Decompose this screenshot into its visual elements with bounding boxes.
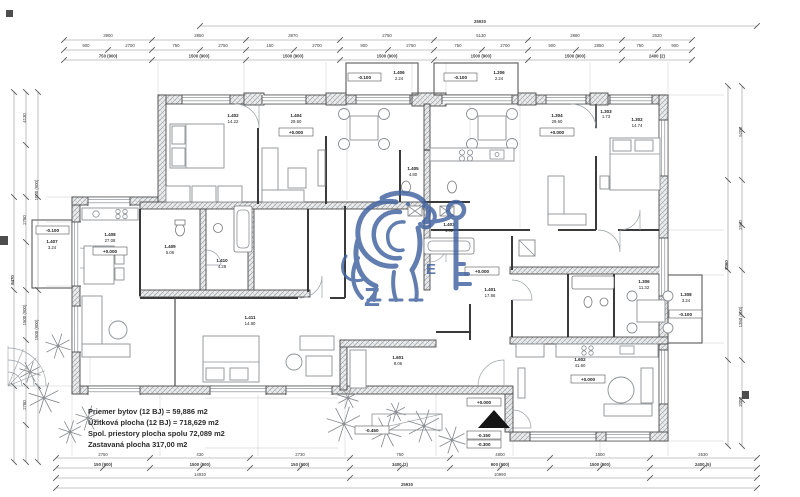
dimension-label: 900 (900) <box>491 462 510 467</box>
summary-line: Úžitková plocha (12 BJ) = 718,629 m2 <box>88 418 219 427</box>
dimension-label: 14930 <box>194 472 207 477</box>
room-label: 1.402 <box>227 113 239 118</box>
level-marker: +0.000 <box>540 128 574 136</box>
dimension-label: 1500 (900) <box>590 462 611 467</box>
dimension-label: 900 <box>360 43 368 48</box>
toilet <box>176 224 185 236</box>
svg-text:-0.100: -0.100 <box>46 228 59 233</box>
dimension-label: 2700 <box>312 43 322 48</box>
level-marker: -0.450 <box>355 426 389 434</box>
dimension-label: 2400 (5) <box>695 462 712 467</box>
dimension-label: 2780 <box>22 215 27 225</box>
level-marker: -0.100 <box>36 226 69 234</box>
svg-text:27.08: 27.08 <box>105 238 116 243</box>
level-marker: +0.000 <box>279 128 313 136</box>
svg-text:1.73: 1.73 <box>602 114 611 119</box>
svg-text:14.22: 14.22 <box>228 119 239 124</box>
room-label: 1.304 <box>551 113 563 118</box>
svg-text:+0.000: +0.000 <box>289 130 304 135</box>
dimension-label: 750 (900) <box>99 54 118 59</box>
tree-symbol <box>59 421 82 444</box>
dimension-label: 2700 <box>500 43 510 48</box>
svg-text:8.06: 8.06 <box>394 361 403 366</box>
tree-symbol <box>386 402 405 421</box>
dimension-label: 2750 <box>98 452 108 457</box>
exterior-walls <box>72 93 668 441</box>
toilet <box>448 181 457 193</box>
level-marker: +0.000 <box>467 398 501 406</box>
svg-text:14.80: 14.80 <box>245 321 256 326</box>
level-marker: -0.150 <box>467 431 501 439</box>
dimension-label: 4800 <box>495 452 505 457</box>
sofa <box>604 404 652 416</box>
dimension-label: 1350 (900) <box>738 306 743 327</box>
dimension-label: 1500 (900) <box>377 54 398 59</box>
dimension-label: 2850 <box>594 43 604 48</box>
summary-line: Priemer bytov (12 BJ) = 59,886 m2 <box>88 407 208 416</box>
dimension-label: 2620 <box>652 33 662 38</box>
dimension-label: 25930 <box>474 19 487 24</box>
level-marker: +0.000 <box>465 267 499 275</box>
dining-set <box>339 109 390 150</box>
summary-block: Priemer bytov (12 BJ) = 59,886 m2 Úžitko… <box>88 407 225 449</box>
svg-text:29.60: 29.60 <box>552 119 563 124</box>
dining-set <box>467 109 518 150</box>
svg-text:5.06: 5.06 <box>166 250 175 255</box>
room-label: 1.407 <box>46 239 58 244</box>
level-marker: +0.000 <box>93 247 127 255</box>
svg-text:-0.450: -0.450 <box>365 428 378 433</box>
svg-text:-0.150: -0.150 <box>477 433 490 438</box>
watermark-letter: E <box>426 261 436 278</box>
svg-text:11.32: 11.32 <box>639 285 650 290</box>
dimension-label: 2530 <box>698 452 708 457</box>
svg-text:14.74: 14.74 <box>632 123 643 128</box>
svg-text:-0.100: -0.100 <box>358 75 371 80</box>
room-label: 1.406 <box>393 70 405 75</box>
level-marker: -0.100 <box>669 310 702 318</box>
room-label: 1.401 <box>484 287 496 292</box>
dimension-label: 2400 (2) <box>649 54 666 59</box>
dimension-label: 2780 <box>22 400 27 410</box>
svg-text:3.24: 3.24 <box>48 245 57 250</box>
dimension-label: 8360 <box>724 260 729 270</box>
room-label: 1.409 <box>164 244 176 249</box>
level-marker: -0.100 <box>348 73 381 81</box>
room-label: 1.601 <box>392 355 404 360</box>
dimension-label: 150 (900) <box>291 462 310 467</box>
dimension-label: 1000 (900) <box>34 179 39 200</box>
room-label: 1.404 <box>290 113 302 118</box>
watermark-letter: Z <box>364 282 380 312</box>
dimension-label: 900 <box>671 43 679 48</box>
svg-text:+0.000: +0.000 <box>550 130 565 135</box>
dimension-label: 1500 <box>595 452 605 457</box>
svg-text:+0.000: +0.000 <box>581 377 596 382</box>
room-label: 1.403 <box>443 222 455 227</box>
tree-symbol <box>29 383 60 414</box>
tree-symbol <box>46 334 71 359</box>
bathtub <box>572 276 614 289</box>
bathtub <box>424 238 474 254</box>
dimension-label: 750 <box>172 43 180 48</box>
room-label: 1.408 <box>104 232 116 237</box>
room-label: 1.308 <box>680 292 692 297</box>
dimension-label: 900 <box>82 43 90 48</box>
room-label: 1.306 <box>638 279 650 284</box>
tree-symbol <box>327 407 361 441</box>
dimension-label: 3900 <box>103 33 113 38</box>
dimension-label: 900 <box>548 43 556 48</box>
dimension-label: 2700 <box>125 43 135 48</box>
dimension-label: 5130 <box>476 33 486 38</box>
svg-text:41.60: 41.60 <box>575 363 586 368</box>
dimension-label: 2880 <box>570 33 580 38</box>
dimension-label: 2850 <box>194 33 204 38</box>
room-label: 1.206 <box>493 70 505 75</box>
dimension-label: 25930 <box>401 482 414 487</box>
svg-text:-0.100: -0.100 <box>454 75 467 80</box>
room-label: 1.302 <box>631 117 643 122</box>
dimension-label: 150 <box>266 43 274 48</box>
room-label: 1.411 <box>244 315 256 320</box>
dimension-label: 1500 (900) <box>283 54 304 59</box>
floorplan-page: 2593039002850397027505130288026209002700… <box>0 0 800 497</box>
room-label: 1.410 <box>216 258 228 263</box>
dimension-label: 430 <box>196 452 204 457</box>
dimension-label: 3400 (2) <box>392 462 409 467</box>
dimension-label: 1500 (900) <box>22 304 27 325</box>
svg-text:+0.000: +0.000 <box>477 400 492 405</box>
outdoor-bench <box>205 398 442 448</box>
dimension-label: 1500 (900) <box>471 54 492 59</box>
level-marker: +0.000 <box>571 375 605 383</box>
svg-text:+0.000: +0.000 <box>475 269 490 274</box>
summary-line: Spol. priestory plocha spolu 72,089 m2 <box>88 429 225 438</box>
summary-line: Zastavaná plocha 317,00 m2 <box>88 440 187 449</box>
room-label: 1.602 <box>574 357 586 362</box>
dimension-label: 750 <box>454 43 462 48</box>
dimension-label: 2560 <box>738 220 743 230</box>
tv-cabinet <box>318 150 325 186</box>
svg-text:29.60: 29.60 <box>291 119 302 124</box>
svg-text:17.86: 17.86 <box>485 293 496 298</box>
dimension-label: 150 (900) <box>94 462 113 467</box>
level-marker: -0.300 <box>467 440 501 448</box>
dimension-label: 1500 (900) <box>565 54 586 59</box>
level-marker: -0.100 <box>444 73 477 81</box>
wardrobe <box>300 336 334 350</box>
washbasin <box>214 224 223 233</box>
round-table <box>109 321 127 339</box>
svg-text:-0.100: -0.100 <box>679 312 692 317</box>
svg-text:2.24: 2.24 <box>395 76 404 81</box>
svg-text:4.92: 4.92 <box>445 228 454 233</box>
dimension-label: 2750 <box>406 43 416 48</box>
balcony-right <box>668 275 702 343</box>
dimension-label: 10990 <box>494 472 507 477</box>
floor-plan-drawing: 2593039002850397027505130288026209002700… <box>0 0 800 497</box>
dimension-label: 4130 <box>22 113 27 123</box>
dimension-label: 2750 <box>218 43 228 48</box>
dimension-label: 1500 (900) <box>34 319 39 340</box>
dimension-label: 8470 <box>10 275 15 285</box>
dimension-label: 2750 <box>382 33 392 38</box>
toilet <box>584 297 592 308</box>
dimension-label: 1500 (900) <box>190 462 211 467</box>
svg-text:+0.000: +0.000 <box>103 249 118 254</box>
room-label: 1.405 <box>407 166 419 171</box>
dimension-label: 750 <box>636 43 644 48</box>
svg-text:4.80: 4.80 <box>409 172 418 177</box>
svg-text:3.24: 3.24 <box>682 298 691 303</box>
kitchen-counter <box>82 208 138 220</box>
tree-symbol <box>439 427 466 454</box>
dimension-label: 1500 (900) <box>189 54 210 59</box>
dimension-label: 5200 <box>738 127 743 137</box>
tree-symbol <box>408 410 440 442</box>
washbasin <box>600 298 608 306</box>
dimension-label: 3970 <box>288 33 298 38</box>
round-table <box>608 377 634 403</box>
svg-text:-0.300: -0.300 <box>477 442 490 447</box>
svg-text:4.28: 4.28 <box>218 264 227 269</box>
dimension-label: 750 <box>396 452 404 457</box>
kitchen-counter <box>556 344 658 357</box>
closet <box>350 350 366 388</box>
coffee-table <box>288 168 306 188</box>
svg-text:2.24: 2.24 <box>495 76 504 81</box>
dimension-label: 2730 <box>295 452 305 457</box>
